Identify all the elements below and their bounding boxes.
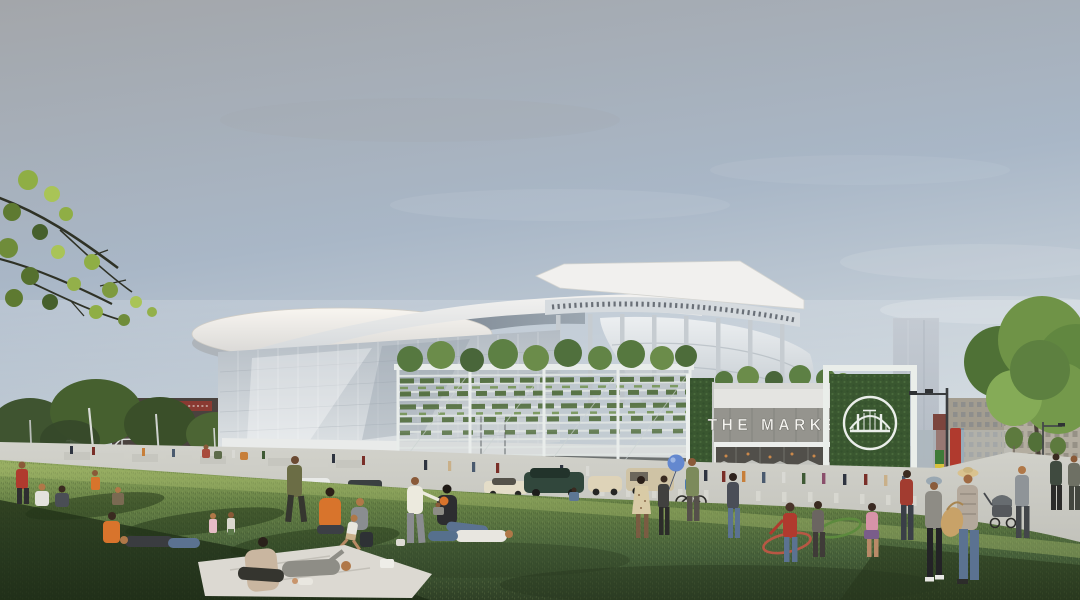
logo-wall xyxy=(826,368,914,476)
baby-on-blanket xyxy=(298,578,313,585)
scene-canvas: BAY FAR xyxy=(0,0,1080,600)
cream-bug xyxy=(588,476,622,492)
backpack xyxy=(360,532,373,547)
frisbee xyxy=(440,497,449,506)
arena-rendering-scene: BAY FAR xyxy=(0,0,1080,600)
blue-balloon xyxy=(668,455,685,472)
cooler xyxy=(380,559,394,568)
patterned-dress xyxy=(632,486,651,514)
